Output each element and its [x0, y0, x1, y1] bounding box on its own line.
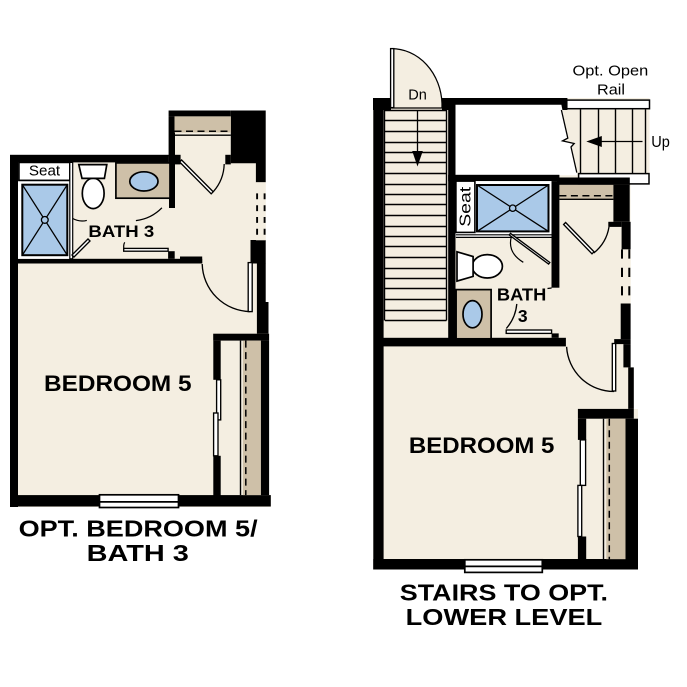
svg-text:STAIRS TO OPT.: STAIRS TO OPT.	[400, 580, 608, 606]
svg-text:BEDROOM 5: BEDROOM 5	[44, 371, 192, 396]
svg-text:Opt. Open: Opt. Open	[573, 62, 649, 79]
svg-text:Rail: Rail	[597, 82, 625, 99]
svg-text:BEDROOM 5: BEDROOM 5	[409, 433, 555, 458]
svg-text:Up: Up	[651, 134, 670, 151]
svg-text:BATH: BATH	[497, 284, 546, 304]
svg-text:BATH 3: BATH 3	[88, 222, 154, 241]
svg-text:BATH 3: BATH 3	[87, 540, 189, 566]
svg-text:Seat: Seat	[458, 186, 475, 227]
svg-text:OPT. BEDROOM 5/: OPT. BEDROOM 5/	[19, 515, 259, 541]
svg-text:Dn: Dn	[408, 87, 427, 104]
svg-text:LOWER LEVEL: LOWER LEVEL	[406, 604, 603, 630]
svg-text:3: 3	[518, 306, 528, 326]
svg-text:Seat: Seat	[29, 164, 60, 180]
